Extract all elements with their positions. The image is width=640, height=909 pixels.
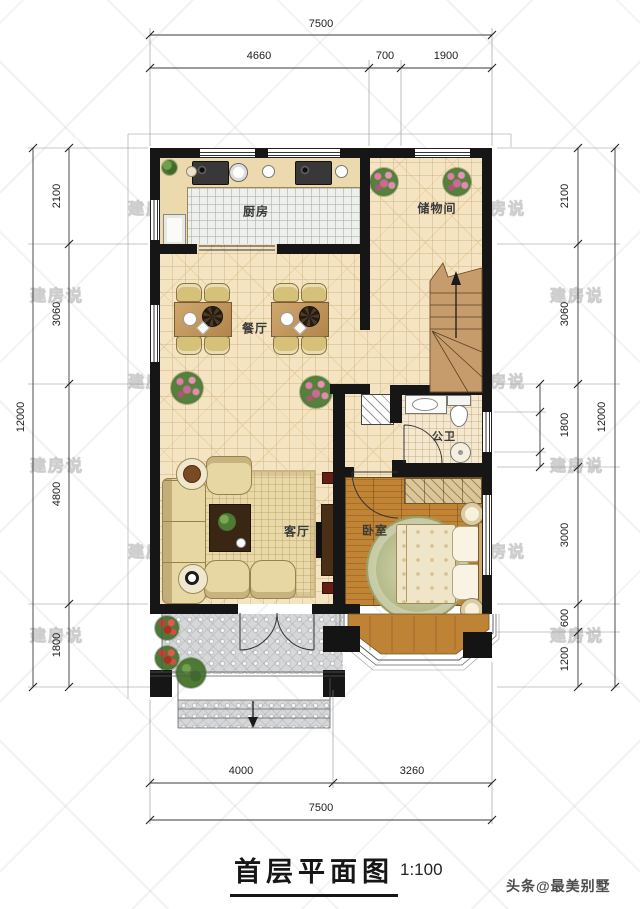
wall-segment	[482, 158, 492, 412]
dim-left-4: 1800	[51, 633, 63, 657]
dim-left-total: 12000	[15, 402, 27, 433]
armchair	[204, 560, 250, 599]
dim-top-total: 7500	[309, 18, 333, 30]
window	[200, 148, 255, 158]
decor	[183, 465, 201, 483]
porch-post	[150, 670, 172, 697]
chair	[204, 336, 230, 355]
chair	[301, 283, 327, 302]
dim-bottom-1: 4000	[229, 765, 253, 777]
wall-segment	[150, 148, 200, 158]
dim-top-3: 1900	[434, 50, 458, 62]
dim-bottom-2: 3260	[400, 765, 424, 777]
porch-flowers	[155, 616, 179, 640]
side-table	[178, 564, 208, 594]
porch-post	[323, 670, 345, 697]
chair	[176, 283, 202, 302]
bath-sink-basin	[412, 398, 438, 411]
plate	[183, 312, 197, 326]
wall-segment	[345, 467, 354, 477]
wardrobe	[404, 478, 482, 504]
decor	[185, 571, 199, 585]
wall-segment	[398, 463, 482, 477]
window	[482, 412, 492, 452]
dining-set	[271, 283, 327, 353]
room-label-storage: 储物间	[417, 200, 456, 217]
kitchen-bowl	[186, 166, 197, 177]
kitchen-bowl	[335, 165, 348, 178]
room-label-living: 客厅	[284, 523, 310, 540]
bed	[396, 522, 486, 604]
armchair	[206, 456, 252, 495]
nightstand-lamp	[460, 598, 484, 622]
wall-segment	[312, 604, 360, 614]
storage-plant	[370, 168, 398, 196]
dim-right-2: 3060	[559, 302, 571, 326]
dining-plant	[171, 372, 203, 404]
floorplan-sheet: 建房说建房说建房说建房说建房说建房说建房说建房说建房说建房说建房说建房说建房说建…	[0, 0, 640, 909]
chair	[301, 336, 327, 355]
wall-segment	[150, 604, 238, 614]
wall-segment	[482, 452, 492, 495]
porch-bush	[176, 658, 206, 688]
coffee-table	[209, 504, 251, 552]
cup	[236, 538, 246, 548]
wall-segment	[340, 148, 415, 158]
room-label-dining: 餐厅	[242, 320, 268, 337]
bed-fold	[406, 524, 407, 602]
window	[415, 148, 470, 158]
dining-set	[174, 283, 230, 353]
chair	[273, 283, 299, 302]
drain-dot	[458, 450, 463, 455]
dim-top-2: 700	[376, 50, 394, 62]
pillow	[452, 526, 480, 562]
shower-drain	[450, 442, 471, 463]
wall-segment	[402, 385, 492, 395]
wall-segment	[390, 385, 402, 423]
dim-left-2: 3060	[51, 302, 63, 326]
wall-segment	[150, 158, 160, 200]
room-label-kitchen: 厨房	[243, 203, 269, 220]
credit-watermark: 头条@最美别墅	[506, 876, 611, 896]
dim-left-3: 4800	[51, 482, 63, 506]
chair	[176, 336, 202, 355]
watermark-text: 建房说	[377, 622, 431, 646]
dim-right-total: 12000	[596, 402, 608, 433]
chair	[204, 283, 230, 302]
watermark-text: 建房说	[30, 452, 84, 476]
dim-right-6: 1200	[559, 647, 571, 671]
drawing-scale: 1:100	[400, 860, 443, 880]
dim-right-5: 600	[559, 609, 571, 627]
dim-top-1: 4660	[247, 50, 271, 62]
wall-segment	[150, 362, 160, 604]
dining-table	[174, 302, 232, 337]
porch-flowers	[155, 646, 179, 670]
kitchen-bowl	[262, 165, 275, 178]
window	[150, 200, 160, 240]
dim-right-3: 1800	[559, 413, 571, 437]
armchair	[250, 560, 296, 599]
room-label-bedroom: 卧室	[362, 522, 388, 539]
side-table	[176, 458, 208, 490]
watermark-text: 建房说	[550, 452, 604, 476]
nightstand-lamp	[460, 502, 484, 526]
wall-segment	[255, 148, 268, 158]
window	[482, 495, 492, 575]
dining-table	[271, 302, 329, 337]
stove-right	[295, 161, 332, 185]
chair	[273, 336, 299, 355]
wall-segment	[150, 244, 197, 254]
dim-right-1: 2100	[559, 184, 571, 208]
kitchen-round-sink	[229, 163, 248, 182]
dim-bottom-total: 7500	[309, 802, 333, 814]
dim-left-1: 2100	[51, 184, 63, 208]
wall-segment	[470, 148, 492, 158]
room-label-bath: 公卫	[432, 428, 456, 444]
storage-plant	[443, 168, 471, 196]
bed-blanket	[396, 524, 456, 604]
floor-steps	[178, 700, 330, 728]
stove-left	[192, 161, 229, 185]
drawing-title: 首层平面图	[230, 850, 398, 897]
table-plant	[218, 513, 236, 531]
window	[150, 305, 160, 362]
wall-segment	[333, 384, 345, 614]
wall-segment	[482, 575, 492, 614]
pillow	[452, 564, 480, 600]
dim-right-4: 3000	[559, 523, 571, 547]
window	[268, 148, 340, 158]
kitchen-sink-left	[163, 214, 186, 246]
tv-screen	[316, 522, 322, 558]
wall-segment	[360, 148, 370, 330]
wall-segment	[277, 244, 370, 254]
plate	[280, 312, 294, 326]
dining-plant	[300, 376, 332, 408]
kitchen-plant	[162, 160, 177, 175]
